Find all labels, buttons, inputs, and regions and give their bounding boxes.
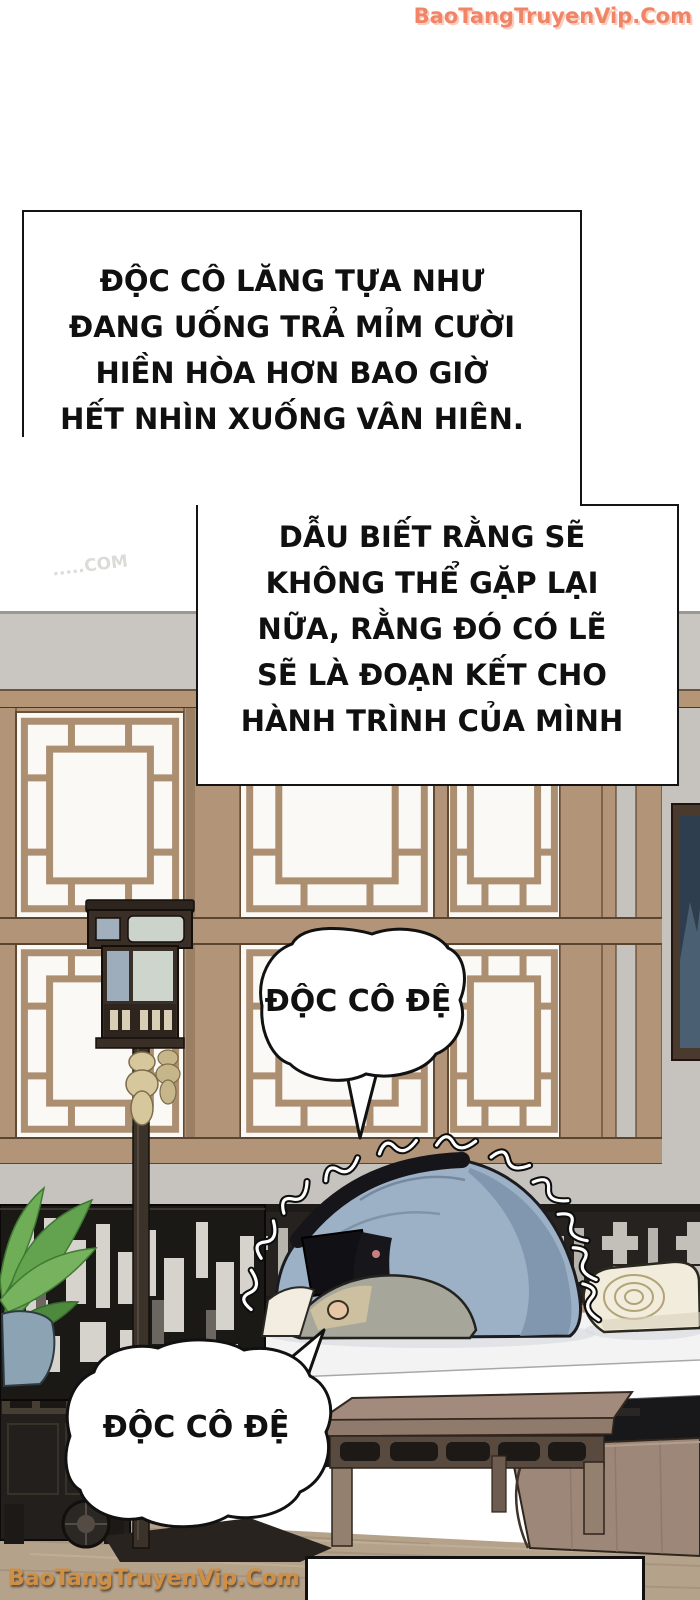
panel-border-left — [22, 210, 24, 437]
panel-border-bottom — [196, 784, 679, 786]
narration-text-2: DẪU BIẾT RẰNG SẼ KHÔNG THỂ GẶP LẠI NỮA, … — [206, 514, 658, 744]
narration-line: HÀNH TRÌNH CỦA MÌNH — [206, 698, 658, 744]
narration-text-1: ĐỘC CÔ LĂNG TỰA NHƯ ĐANG UỐNG TRẢ MỈM CƯ… — [30, 258, 554, 442]
narration-line: DẪU BIẾT RẰNG SẼ — [206, 514, 658, 560]
narration-line: ĐỘC CÔ LĂNG TỰA NHƯ — [30, 258, 554, 304]
panel-border-top — [22, 210, 582, 212]
speech-bubble-1-text: ĐỘC CÔ ĐỆ — [258, 984, 458, 1019]
speech-bubble-2-text: ĐỘC CÔ ĐỆ — [76, 1410, 316, 1445]
narration-line: HẾT NHÌN XUỐNG VÂN HIÊN. — [30, 396, 554, 442]
comic-page: ĐỘC CÔ LĂNG TỰA NHƯ ĐANG UỐNG TRẢ MỈM CƯ… — [0, 0, 700, 1600]
scene-artwork — [0, 0, 700, 1600]
narration-line: SẼ LÀ ĐOẠN KẾT CHO — [206, 652, 658, 698]
narration-line: ĐANG UỐNG TRẢ MỈM CƯỜI — [30, 304, 554, 350]
narration-line: HIỀN HÒA HƠN BAO GIỜ — [30, 350, 554, 396]
panel-border-right — [580, 210, 582, 506]
watermark-top: BaoTangTruyenVip.Com — [414, 4, 692, 28]
watermark-bottom: BaoTangTruyenVip.Com — [8, 1566, 300, 1591]
bottom-panel — [305, 1556, 645, 1600]
narration-line: NỮA, RẰNG ĐÓ CÓ LẼ — [206, 606, 658, 652]
panel-border-right-2 — [677, 504, 679, 786]
panel-border-step — [580, 504, 679, 506]
wooden-table — [320, 1392, 632, 1546]
narration-line: KHÔNG THỂ GẶP LẠI — [206, 560, 658, 606]
panel-border-left-2 — [196, 505, 198, 786]
wall-painting — [672, 804, 700, 1060]
